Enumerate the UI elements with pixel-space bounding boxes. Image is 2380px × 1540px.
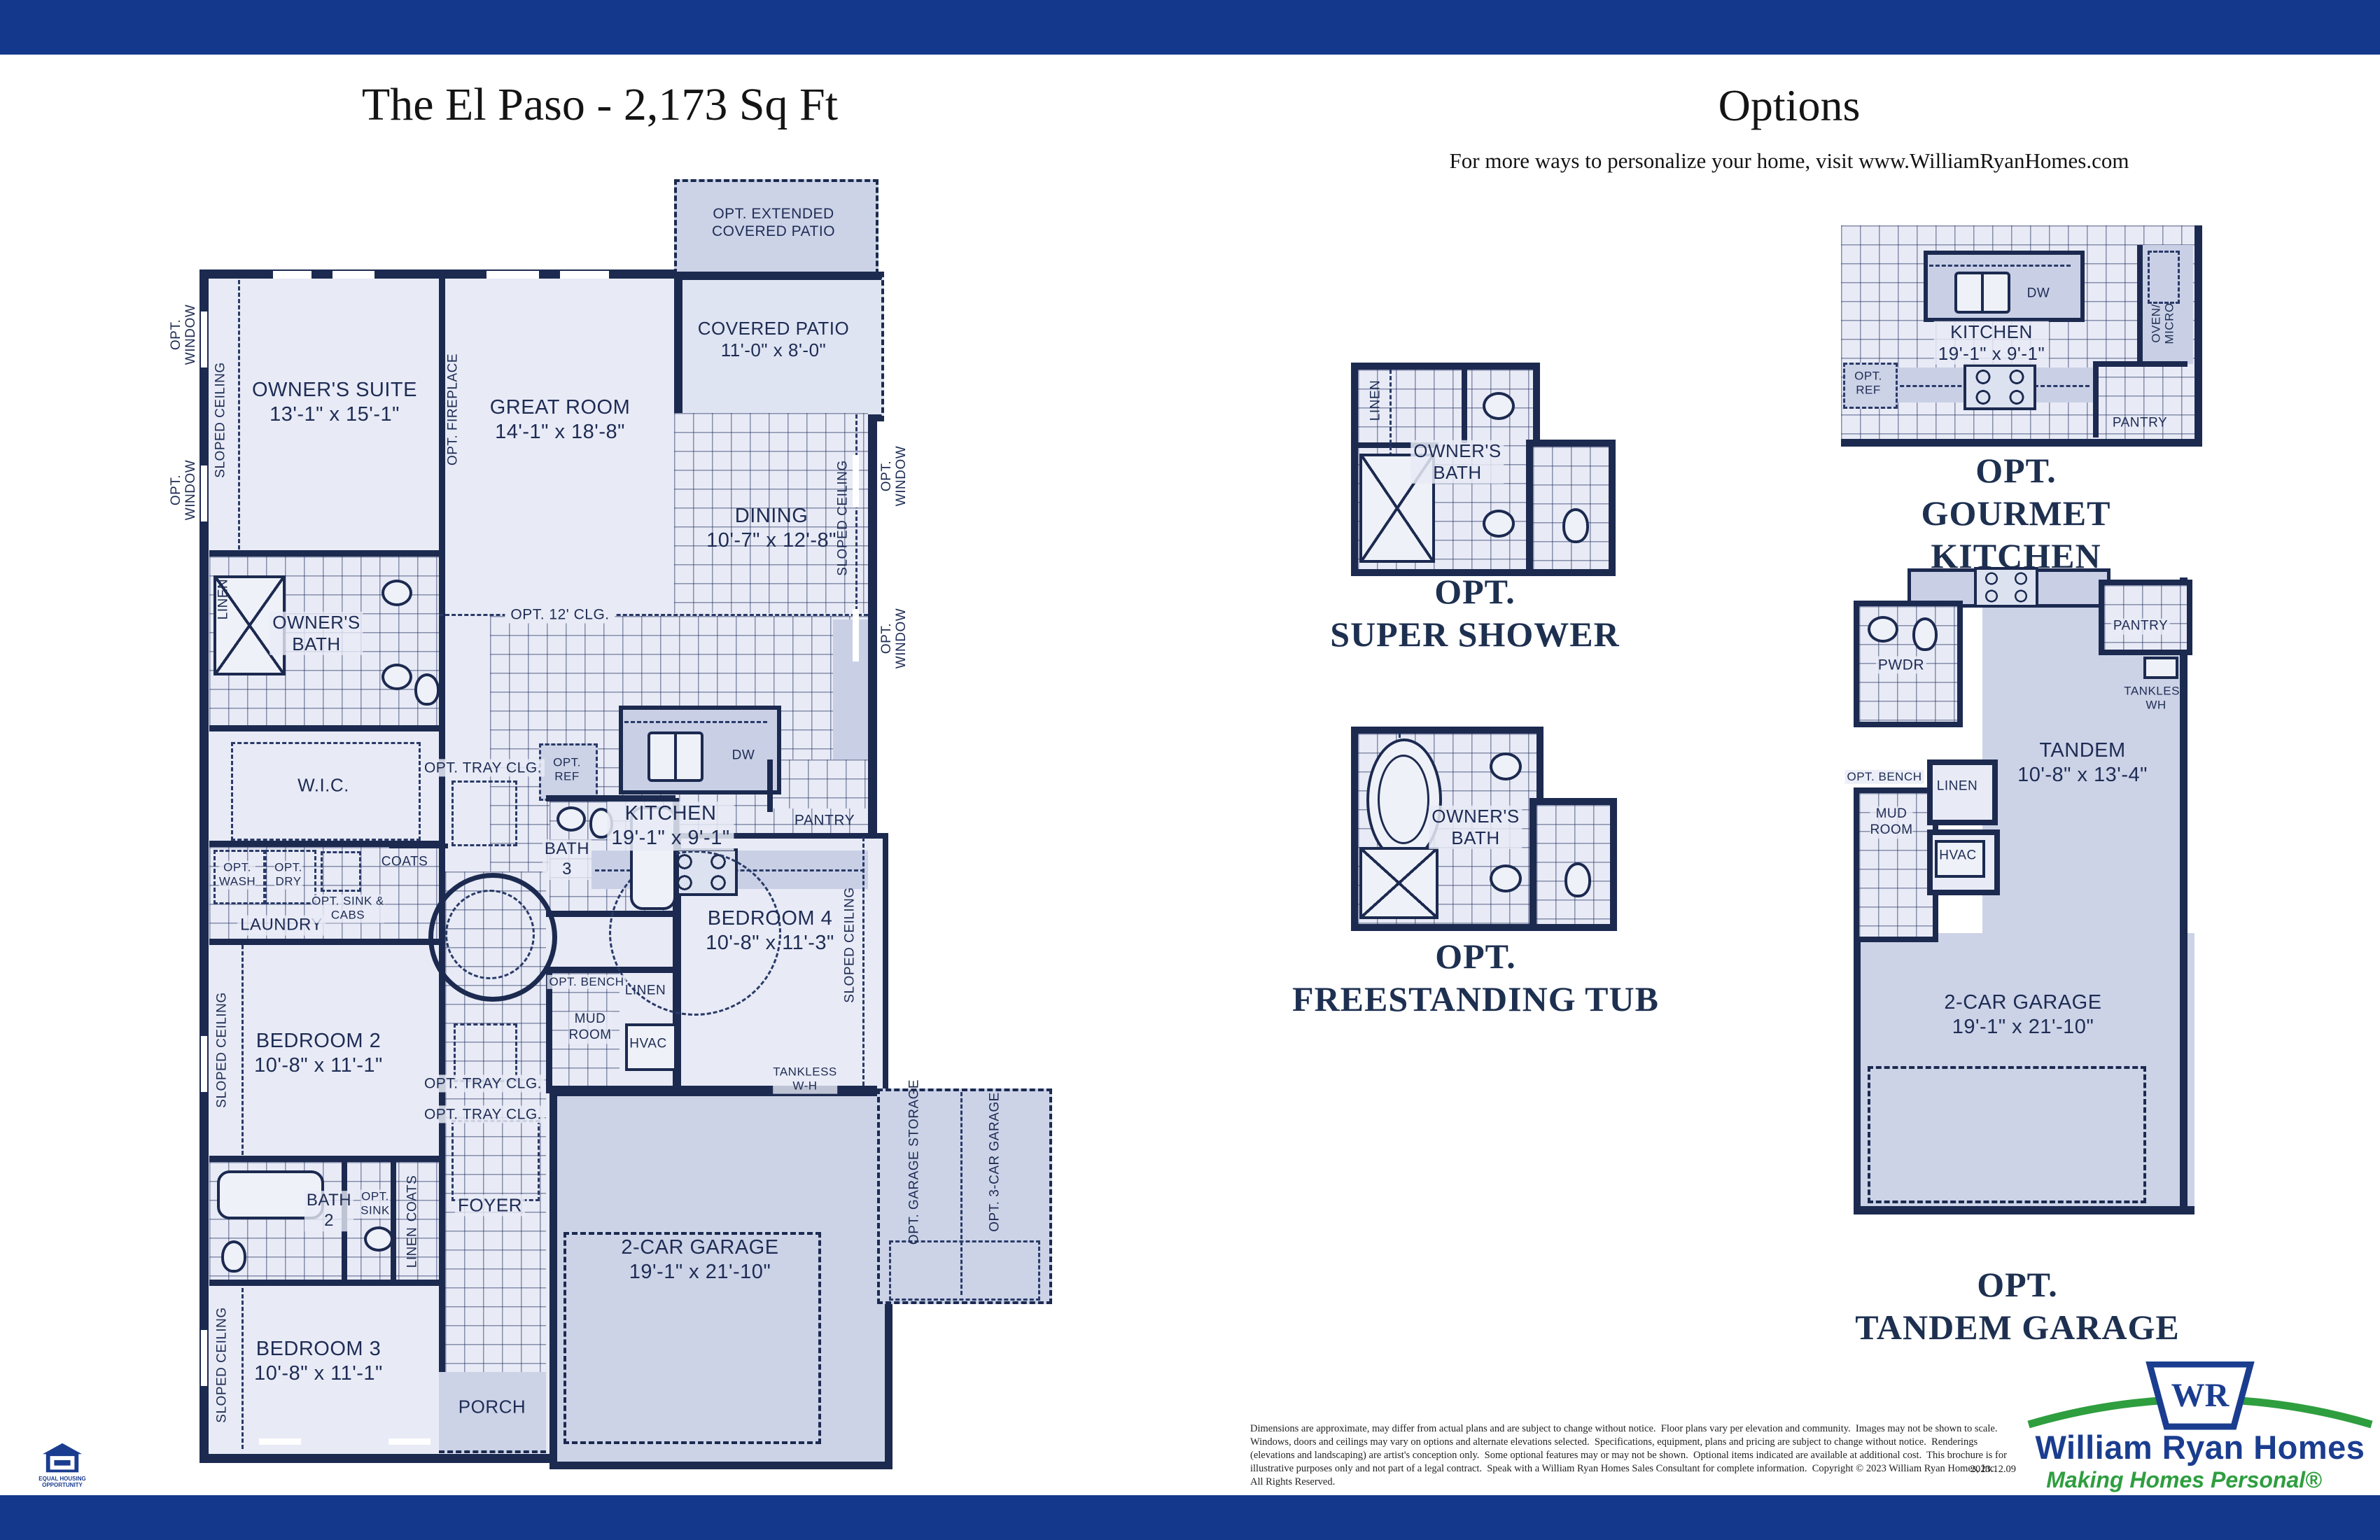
- dishwasher-label: DW: [732, 748, 755, 764]
- opt-tray-ceiling-label: OPT. TRAY CLG.: [421, 1074, 545, 1092]
- opt-tray-ceiling-label: OPT. TRAY CLG.: [421, 1105, 545, 1123]
- pantry-label: PANTRY: [794, 811, 855, 829]
- shower-icon: [1359, 847, 1438, 919]
- bedroom2-label: BEDROOM 2 10'-8" x 11'-1": [254, 1029, 383, 1078]
- cooktop-icon: [1974, 567, 2038, 608]
- bath2-label: BATH 2: [304, 1191, 353, 1231]
- sink-icon: [381, 580, 412, 606]
- sloped-ceiling-label: SLOPED CEILING: [216, 992, 230, 1107]
- sloped-ceiling-line: [855, 414, 857, 610]
- window-gap: [486, 271, 539, 279]
- garage-label: 2-CAR GARAGE 19'-1" x 21'-10": [1944, 990, 2101, 1039]
- sink-icon: [1868, 616, 1898, 643]
- opt-fireplace-label: OPT. FIREPLACE: [447, 353, 461, 465]
- sloped-ceiling-label: SLOPED CEILING: [214, 362, 229, 477]
- wall: [209, 550, 439, 556]
- bottom-brand-bar: [0, 1495, 2380, 1540]
- kitchen-sink-icon: [1954, 272, 2010, 314]
- garage-door-outline: [1868, 1066, 2146, 1203]
- window-gap: [201, 311, 207, 367]
- wall: [439, 279, 445, 1372]
- sink-icon: [1483, 392, 1515, 420]
- pantry-floor: [770, 759, 868, 808]
- wall: [391, 1158, 396, 1282]
- foyer-tray-dash: [451, 1120, 540, 1201]
- wall: [209, 1156, 439, 1162]
- tankless-wh-label: TANKLESS WH: [2124, 685, 2188, 713]
- options-title: Options: [1718, 80, 1861, 132]
- wall: [767, 759, 773, 812]
- revision-date: 2023.12.09: [1953, 1463, 2016, 1476]
- wall: [209, 725, 439, 731]
- gourmet-kitchen-caption: OPT. GOURMET KITCHEN: [1834, 449, 2198, 577]
- opt-window-label: OPT. WINDOW: [169, 460, 199, 520]
- top-brand-bar: [0, 0, 2380, 55]
- kitchen-wall-counter: [833, 619, 868, 759]
- opt-sink-label: OPT. SINK: [360, 1190, 390, 1219]
- opt-window-label: OPT. WINDOW: [880, 608, 909, 668]
- sink-icon: [364, 1226, 393, 1252]
- opt-tray-ceiling-box: [454, 1023, 517, 1082]
- wall: [389, 843, 448, 848]
- island-counter-dash: [1929, 265, 2071, 267]
- logo-monogram: WR: [2171, 1377, 2230, 1414]
- wall: [1462, 370, 1467, 443]
- sink-icon: [1483, 510, 1515, 538]
- garage-label: 2-CAR GARAGE 19'-1" x 21'-10": [621, 1235, 778, 1284]
- opt-window-label: OPT. WINDOW: [880, 446, 909, 506]
- linen-label: LINEN: [1369, 380, 1384, 421]
- sink-icon: [1490, 752, 1522, 780]
- bath3-label: BATH 3: [542, 839, 591, 880]
- kitchen-label: KITCHEN 19'-1" x 9'-1": [607, 801, 734, 850]
- opt-garage-door-outline: [889, 1240, 1040, 1301]
- hvac-label: HVAC: [629, 1037, 666, 1053]
- toilet-icon: [1912, 617, 1938, 651]
- tankless-wh-label: TANKLESS W-H: [773, 1065, 837, 1094]
- toilet-icon: [414, 673, 440, 706]
- covered-patio-label: COVERED PATIO 11'-0" x 8'-0": [698, 318, 849, 361]
- wall: [546, 795, 675, 801]
- opt-sink-box: [321, 851, 361, 892]
- opt-bench-label: OPT. BENCH: [547, 975, 626, 989]
- rotunda-tray-dash: [445, 890, 535, 979]
- opt-3car-garage-label: OPT. 3-CAR GARAGE: [988, 1092, 1003, 1232]
- tub-inner-line: [1378, 755, 1429, 844]
- page-title: The El Paso - 2,173 Sq Ft: [362, 78, 838, 132]
- opt-dry-label: OPT. DRY: [274, 861, 302, 890]
- tandem-label: TANDEM 10'-8" x 13'-4": [2017, 738, 2148, 787]
- owners-bath-label: OWNER'S BATH: [269, 612, 363, 655]
- window-gap: [332, 271, 374, 279]
- wall: [2180, 577, 2187, 1206]
- mud-room-label: MUD ROOM: [1870, 806, 1912, 839]
- window-gap: [201, 1036, 207, 1092]
- coats-label: COATS: [381, 855, 428, 871]
- opt-tray-ceiling-box: [451, 780, 517, 846]
- window-gap: [388, 1438, 430, 1445]
- sloped-ceiling-line: [241, 1288, 244, 1449]
- opt-window-label: OPT. WINDOW: [169, 304, 199, 365]
- opt-sink-cabs-label: OPT. SINK & CABS: [311, 895, 384, 923]
- opt-ceiling-line: [439, 614, 868, 616]
- cooktop-icon: [1963, 364, 2036, 410]
- equal-housing-icon: [42, 1442, 83, 1474]
- tandem-garage-caption: OPT. TANDEM GARAGE: [1855, 1263, 2179, 1349]
- window-gap: [201, 465, 207, 521]
- mud-room-label: MUD ROOM: [568, 1011, 611, 1044]
- pantry-label: PANTRY: [2113, 416, 2167, 432]
- window-gap: [273, 271, 311, 279]
- great-room-label: GREAT ROOM 14'-1" x 18'-8": [490, 395, 631, 444]
- pantry-room: [2099, 580, 2192, 655]
- disclaimer-text: Dimensions are approximate, may differ f…: [1250, 1422, 2010, 1489]
- oven-micro-label: OVEN/ MICRO: [2150, 302, 2176, 344]
- window-gap: [259, 1438, 301, 1445]
- owners-suite-label: OWNER'S SUITE 13'-1" x 15'-1": [252, 378, 417, 427]
- toilet-icon: [1562, 508, 1589, 543]
- owners-bath-label: OWNER'S BATH: [1410, 440, 1504, 484]
- sink-icon: [556, 806, 586, 832]
- opt-garage-storage-label: OPT. GARAGE STORAGE: [908, 1079, 923, 1245]
- wall: [2093, 361, 2187, 367]
- brochure-page: The El Paso - 2,173 Sq Ft Options For mo…: [0, 0, 2380, 1540]
- opt-extended-patio-label: OPT. EXTENDED COVERED PATIO: [712, 205, 835, 240]
- dining-label: DINING 10'-7" x 12'-8": [706, 504, 836, 553]
- sloped-ceiling-line: [862, 837, 864, 1086]
- tankless-wh-unit: [2143, 657, 2178, 679]
- window-gap: [853, 455, 859, 507]
- opt-tray-ceiling-label: OPT. TRAY CLG.: [421, 759, 545, 776]
- oven-micro-dash: [2148, 251, 2180, 304]
- wrh-logo-icon: WR: [2025, 1361, 2375, 1431]
- opt-ref-label: OPT. REF: [553, 756, 581, 785]
- hvac-label: HVAC: [1939, 848, 1976, 864]
- toilet-icon: [221, 1240, 246, 1273]
- wic-label: W.I.C.: [297, 774, 349, 796]
- linen-label: LINEN: [406, 1227, 421, 1268]
- sloped-ceiling-line: [238, 280, 240, 549]
- wall: [209, 939, 439, 945]
- wall: [2093, 364, 2099, 437]
- logo-name: William Ryan Homes: [2036, 1428, 2365, 1466]
- bedroom4-label: BEDROOM 4 10'-8" x 11'-3": [706, 906, 834, 955]
- owners-bath-label: OWNER'S BATH: [1429, 806, 1522, 849]
- opt-wash-label: OPT. WASH: [219, 861, 255, 890]
- sink-icon: [381, 664, 412, 690]
- linen-label: LINEN: [1937, 779, 1977, 795]
- foyer-label: FOYER: [455, 1194, 525, 1216]
- wall: [209, 1280, 439, 1286]
- linen-label: LINEN: [217, 579, 232, 619]
- porch-label: PORCH: [458, 1396, 526, 1417]
- window-gap: [560, 271, 609, 279]
- sloped-ceiling-label: SLOPED CEILING: [843, 887, 858, 1002]
- freestanding-tub-caption: OPT. FREESTANDING TUB: [1292, 935, 1659, 1021]
- sloped-ceiling-label: SLOPED CEILING: [216, 1307, 230, 1422]
- logo-tagline: Making Homes Personal®: [2046, 1467, 2321, 1493]
- opt-ref-label: OPT. REF: [1854, 370, 1882, 398]
- toilet-icon: [1564, 862, 1591, 897]
- pantry-label: PANTRY: [2111, 619, 2170, 635]
- kitchen-label: KITCHEN 19'-1" x 9'-1": [1934, 321, 2049, 365]
- dishwasher-label: DW: [2027, 286, 2050, 302]
- super-shower-caption: OPT. SUPER SHOWER: [1330, 570, 1619, 656]
- super-shower-plan-wing: [1526, 440, 1616, 576]
- equal-housing-label: EQUAL HOUSING OPPORTUNITY: [38, 1476, 85, 1488]
- window-gap: [201, 1330, 207, 1386]
- kitchen-sink-icon: [647, 731, 703, 782]
- coats-label: COATS: [406, 1175, 421, 1222]
- opt-12-ceiling-label: OPT. 12' CLG.: [505, 605, 615, 623]
- linen-label: LINEN: [625, 983, 666, 1000]
- opt-bench-label: OPT. BENCH: [1844, 770, 1924, 784]
- sloped-ceiling-line: [241, 945, 244, 1155]
- island-counter-dash: [624, 721, 767, 723]
- sink-icon: [1490, 864, 1522, 892]
- window-gap: [853, 609, 859, 661]
- bedroom3-label: BEDROOM 3 10'-8" x 11'-1": [254, 1337, 383, 1386]
- sloped-ceiling-label: SLOPED CEILING: [836, 460, 851, 575]
- pwdr-label: PWDR: [1876, 656, 1926, 673]
- options-subtitle: For more ways to personalize your home, …: [1450, 148, 2129, 174]
